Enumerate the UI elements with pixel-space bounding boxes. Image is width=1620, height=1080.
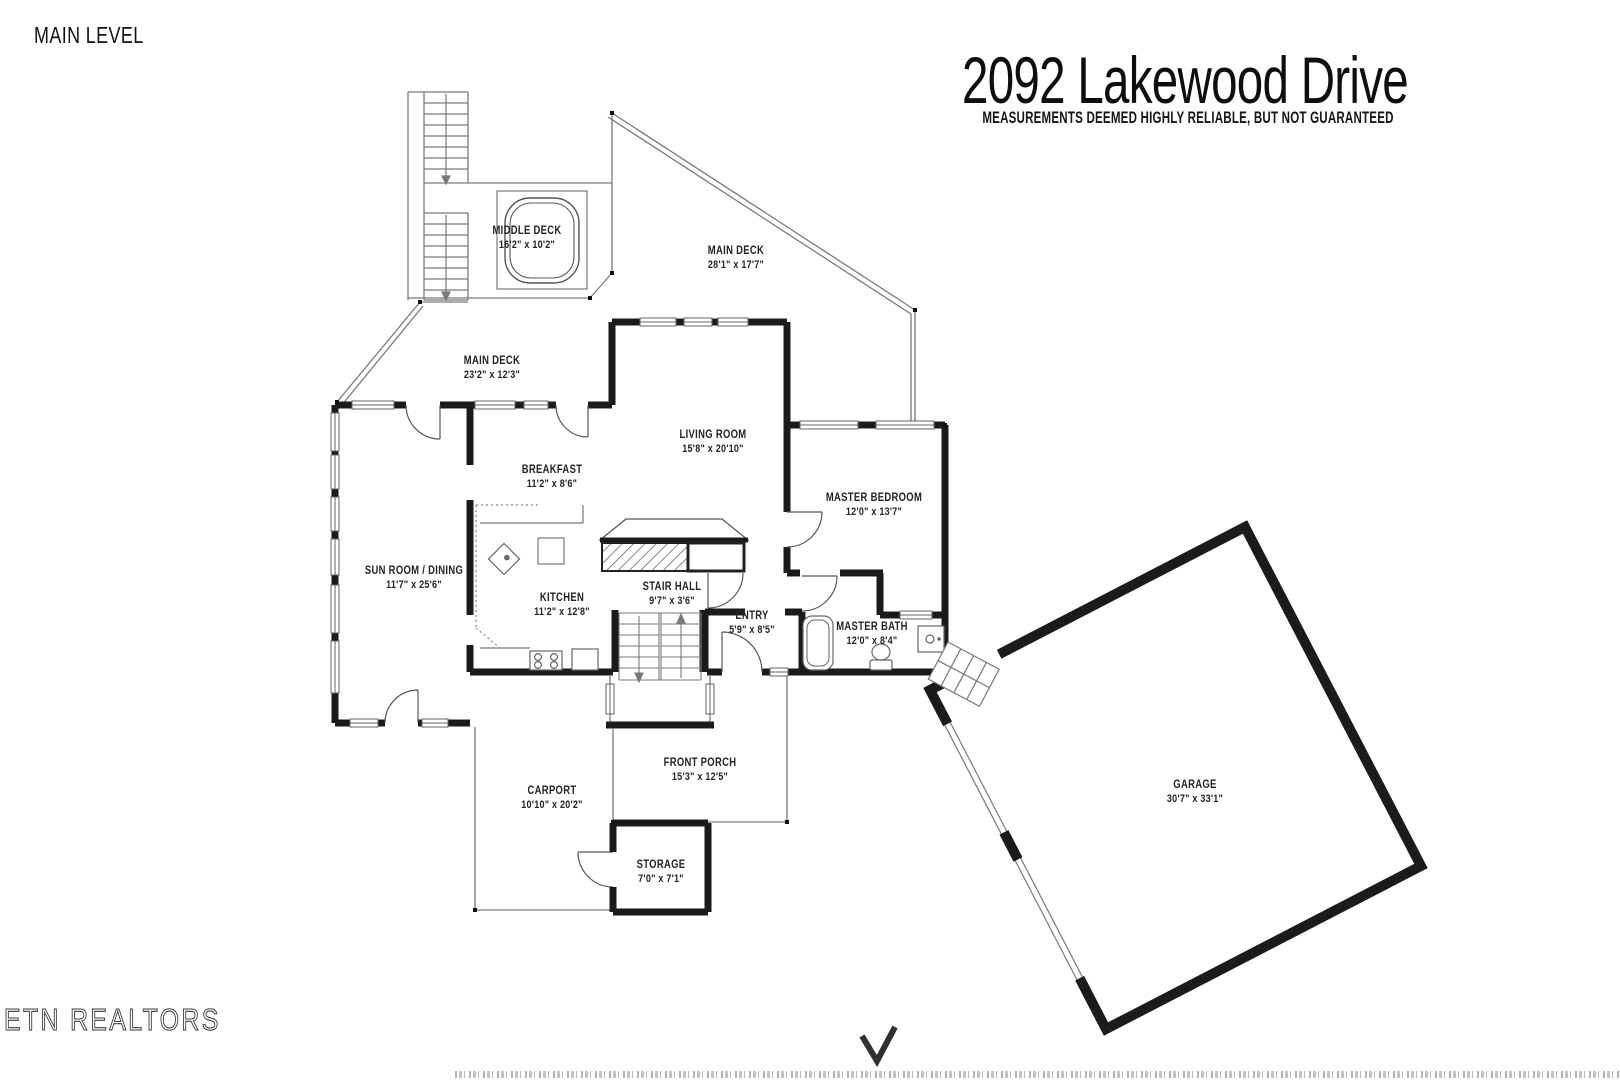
hot-tub-icon [497,191,587,289]
page-title: 2092 Lakewood Drive [933,42,1437,118]
disclaimer-text: MEASUREMENTS DEEMED HIGHLY RELIABLE, BUT… [950,108,1426,128]
kitchen-sink-icon [488,543,519,574]
floor-plan-drawing [0,0,1620,1080]
level-label: MAIN LEVEL [34,22,144,49]
kitchen-counters [476,505,583,648]
realtor-watermark: ETN REALTORS [4,1002,221,1038]
kitchen-cabinet-icon [572,649,598,670]
stair-bumpout [606,676,714,725]
stair-hall-stairs [619,613,701,680]
floor-plan-page: MAIN LEVEL 2092 Lakewood Drive MEASUREME… [0,0,1620,1080]
door-arcs [385,405,837,887]
bathtub-icon [803,616,833,670]
cutoff-check-mark [862,1027,895,1061]
deck-outlines [337,92,915,910]
toilet-icon [870,644,892,670]
cutoff-text-strip [455,1071,1620,1078]
vanity-sink-icon [918,626,944,652]
storage-walls [613,823,708,912]
fireplace-icon [600,519,748,571]
garage-structure [930,527,1421,1029]
stove-icon [530,651,562,670]
corner-dots [335,111,947,912]
